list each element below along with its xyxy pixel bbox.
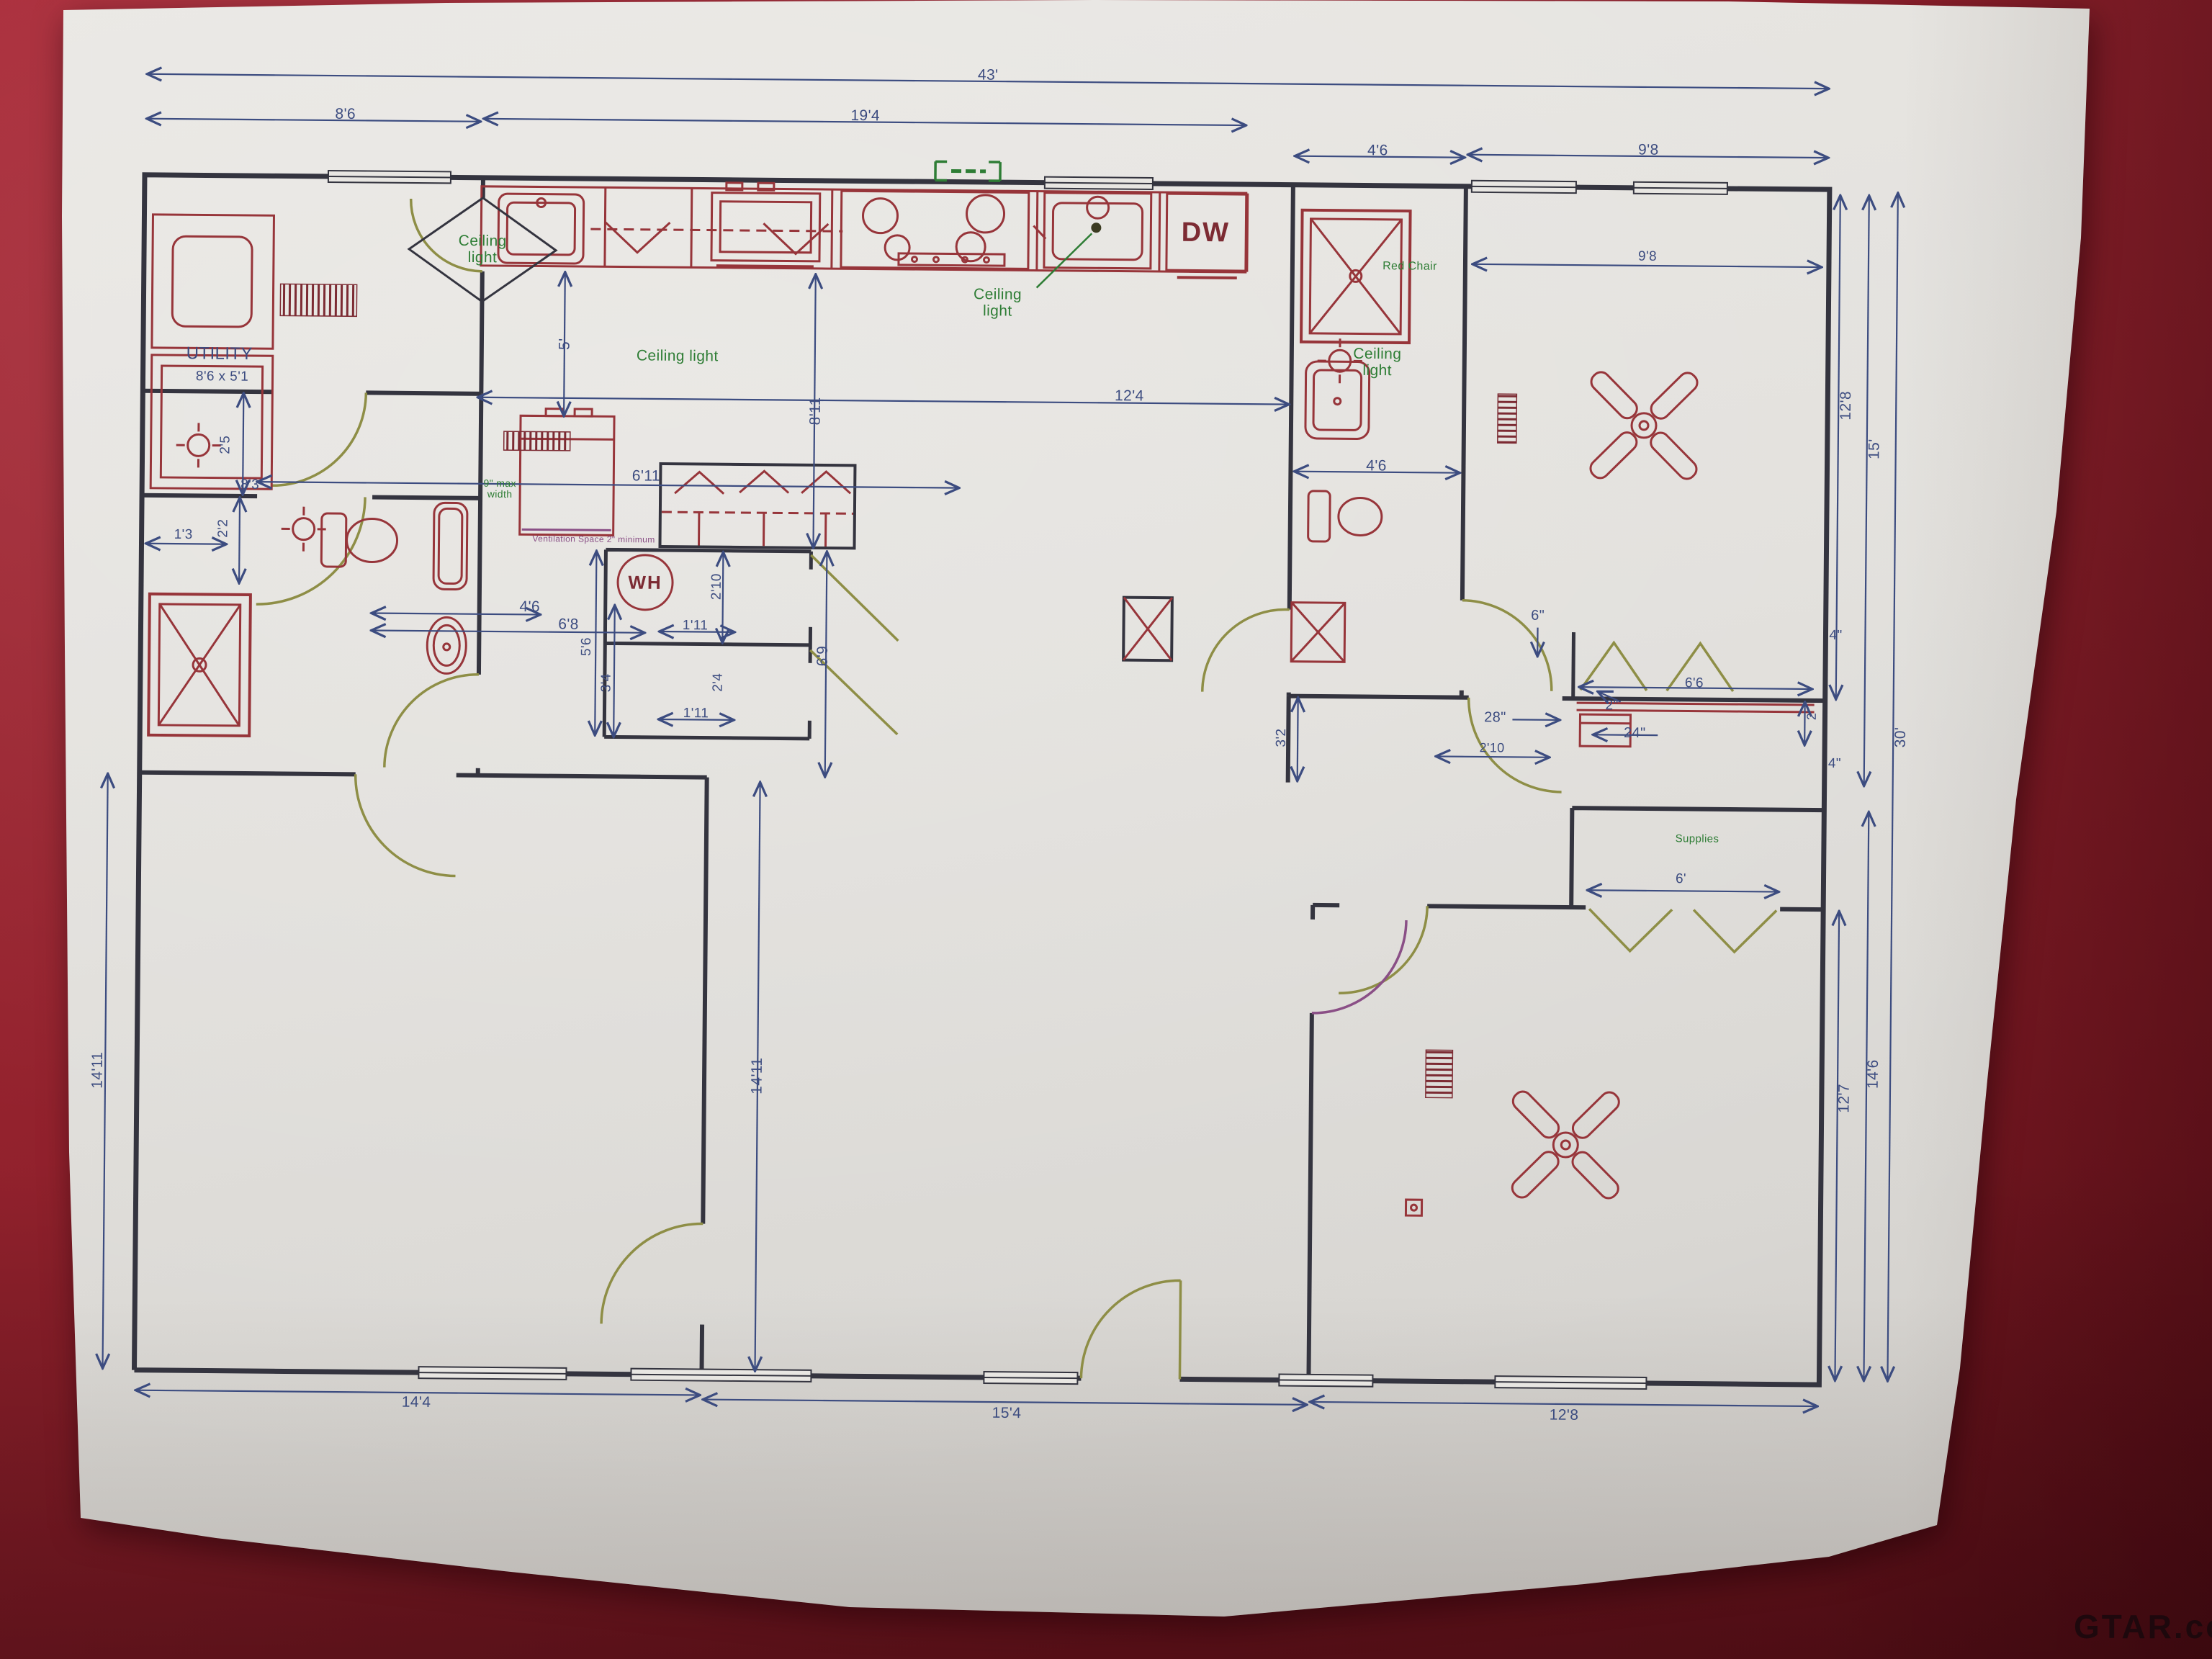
watermark: GTAR.com xyxy=(2074,1607,2212,1646)
dim-supplies-6: 6' xyxy=(1676,872,1686,887)
dim-28in: 28" xyxy=(1484,710,1506,726)
dim-2-2: 2'2 xyxy=(216,519,231,538)
label-water-heater: WH xyxy=(628,572,662,593)
dim-bottom-14-4: 14'4 xyxy=(402,1395,431,1411)
dim-closet-1-11b: 1'11 xyxy=(683,706,709,721)
dim-closet-2-4: 2'4 xyxy=(711,673,726,692)
dim-closet-1-11a: 1'11 xyxy=(683,619,709,634)
dim-hall-3-2: 3'2 xyxy=(1274,728,1290,747)
dim-wh-4-6: 4'6 xyxy=(519,599,540,616)
dim-4in-b: 4" xyxy=(1828,757,1841,772)
dim-6in-a: 6" xyxy=(1531,608,1545,624)
floor-plan-photo: 43'8'619'44'69'89'88'115'2'58'31'32'26'1… xyxy=(0,0,2212,1659)
dim-kitchen-width: 19'4 xyxy=(850,108,880,125)
dim-hall-6-9: 6'9 xyxy=(815,646,832,667)
dim-4in-a: 4" xyxy=(1829,629,1842,644)
label-ceiling-light-diamond: Ceiling light xyxy=(458,233,506,266)
label-red-chair: Red Chair xyxy=(1382,260,1437,273)
dim-bedroom1-width-inner: 9'8 xyxy=(1638,250,1657,265)
dim-right-12-8: 12'8 xyxy=(1838,391,1855,421)
label-dishwasher: DW xyxy=(1181,218,1230,248)
dim-midbath-width: 4'6 xyxy=(1367,143,1388,159)
label-supplies: Supplies xyxy=(1676,833,1719,845)
dim-wh-3-4: 3'4 xyxy=(599,673,614,692)
label-utility-size: 8'6 x 5'1 xyxy=(196,369,248,385)
label-utility: UTILITY xyxy=(186,344,253,364)
dim-bottom-12-8: 12'8 xyxy=(1550,1407,1579,1424)
dim-hall-2-5: 2'5 xyxy=(218,436,233,454)
dim-right-14-6: 14'6 xyxy=(1866,1059,1882,1089)
dim-wh-6-8: 6'8 xyxy=(558,616,579,633)
floor-plan: 43'8'619'44'69'89'88'115'2'58'31'32'26'1… xyxy=(32,37,2003,1480)
label-ceiling-light-kitchen: Ceiling light xyxy=(637,348,719,365)
dim-center-14-11: 14'11 xyxy=(750,1058,766,1094)
dim-overall-width: 43' xyxy=(978,67,999,84)
dim-right-12-7: 12'7 xyxy=(1836,1084,1853,1113)
floor-plan-paper: 43'8'619'44'69'89'88'115'2'58'31'32'26'1… xyxy=(0,0,2212,1659)
dim-2in: 2" xyxy=(1605,698,1618,714)
dim-2-10-hall: 2'10 xyxy=(1479,741,1504,755)
dim-bedroom1-width: 9'8 xyxy=(1638,142,1659,158)
dim-right-30: 30' xyxy=(1893,727,1910,748)
dim-closet-2-10: 2'10 xyxy=(710,573,725,600)
dim-utility-width: 8'6 xyxy=(335,107,356,123)
label-ventilation: Ventilation Space 2" minimum xyxy=(532,534,655,544)
label-ceiling-light-sink: Ceiling light xyxy=(974,287,1022,320)
dim-bottom-15-4: 15'4 xyxy=(992,1406,1022,1422)
dim-midbath-4-6: 4'6 xyxy=(1366,458,1387,475)
dim-hall-6-11: 6'11 xyxy=(632,468,660,485)
label-ceiling-light-dining: Ceiling light xyxy=(1353,346,1401,379)
dim-24in: 24" xyxy=(1624,726,1646,742)
dim-8-3: 8'3 xyxy=(240,478,259,493)
plan-labels: 43'8'619'44'69'89'88'115'2'58'31'32'26'1… xyxy=(32,37,2003,1480)
dim-right-15: 15' xyxy=(1866,439,1883,459)
dim-6-6: 6'6 xyxy=(1685,676,1704,691)
dim-2ft: 2' xyxy=(1805,710,1820,720)
dim-wh-5-6: 5'6 xyxy=(580,637,595,656)
dim-counter-to-island: 5' xyxy=(557,338,574,350)
dim-1-3: 1'3 xyxy=(174,528,193,543)
dim-living-12-4: 12'4 xyxy=(1115,388,1144,405)
label-9in-max-width: 9" max width xyxy=(483,478,516,500)
dim-kitchen-depth: 8'11 xyxy=(808,397,824,425)
dim-left-14-11: 14'11 xyxy=(90,1052,107,1089)
